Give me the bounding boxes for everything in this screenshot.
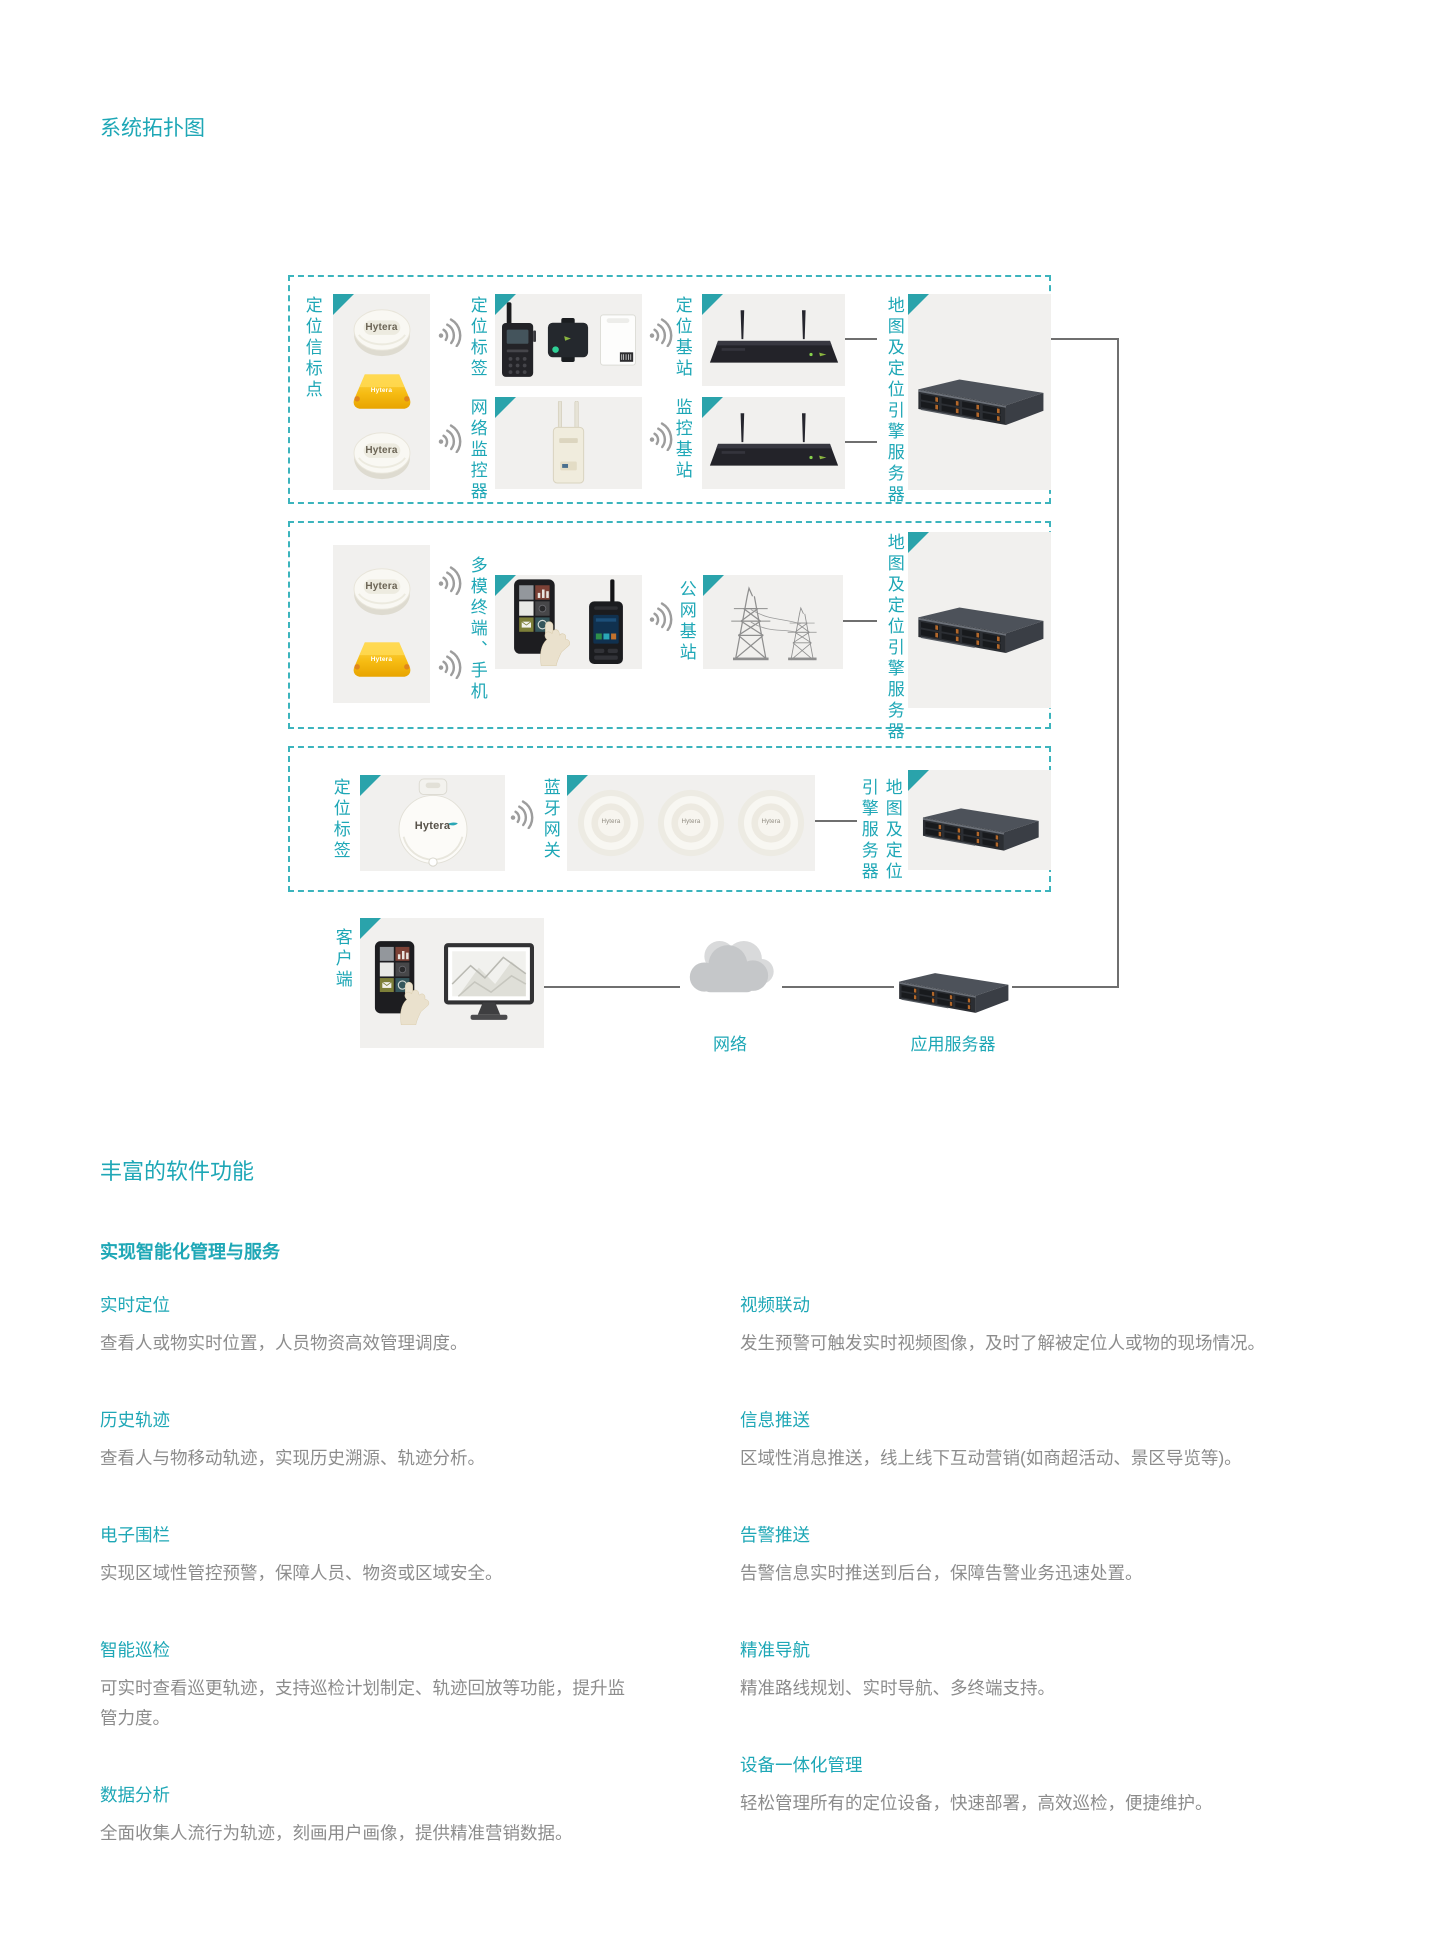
feature-item: 实时定位 查看人或物实时位置，人员物资高效管理调度。: [100, 1292, 640, 1358]
server-icon: [918, 786, 1042, 854]
features-grid: 实时定位 查看人或物实时位置，人员物资高效管理调度。 历史轨迹 查看人与物移动轨…: [100, 1292, 1390, 1897]
feature-title: 设备一体化管理: [740, 1752, 1390, 1777]
client-label: 客户端: [332, 928, 351, 991]
connector-line: [1117, 338, 1119, 988]
feature-item: 数据分析 全面收集人流行为轨迹，刻画用户画像，提供精准营销数据。: [100, 1782, 640, 1848]
corner-triangle-icon: [908, 294, 929, 315]
feature-desc: 查看人与物移动轨迹，实现历史溯源、轨迹分析。: [100, 1443, 640, 1473]
feature-title: 精准导航: [740, 1637, 1390, 1662]
feature-desc: 全面收集人流行为轨迹，刻画用户画像，提供精准营销数据。: [100, 1818, 640, 1848]
connector-line: [843, 620, 877, 622]
network-label: 网络: [678, 1030, 782, 1055]
positioning-tag-label: 定位标签: [330, 778, 349, 862]
map-engine-server-label: 地图及定位引擎服务器: [884, 296, 903, 506]
features-left-column: 实时定位 查看人或物实时位置，人员物资高效管理调度。 历史轨迹 查看人与物移动轨…: [100, 1292, 640, 1897]
multimode-terminal-label: 多模终端、手机: [467, 556, 486, 703]
server-image-block: [908, 294, 1051, 490]
positioning-tag-label: 定位标签: [467, 296, 486, 380]
smartphone-hand-icon: [509, 579, 575, 666]
beacon-points-label: 定位信标点: [302, 296, 321, 401]
terminal-image-block: [495, 575, 642, 669]
connector-line: [845, 441, 877, 443]
wireless-signal-icon: [647, 602, 677, 632]
public-network-station-label: 公网基站: [676, 580, 695, 664]
feature-title: 实时定位: [100, 1292, 640, 1317]
server-icon: [913, 355, 1047, 429]
feature-desc: 区域性消息推送，线上线下互动营销(如商超活动、景区导览等)。: [740, 1443, 1390, 1473]
connector-line: [1051, 338, 1117, 340]
power-tower-icon: [709, 582, 837, 662]
feature-desc: 告警信息实时推送到后台，保障告警业务迅速处置。: [740, 1558, 1390, 1588]
beacon-icon: Hytera: [351, 562, 413, 618]
feature-desc: 精准路线规划、实时导航、多终端支持。: [740, 1673, 1390, 1703]
feature-title: 数据分析: [100, 1782, 640, 1807]
connector-line: [815, 820, 857, 822]
wireless-signal-icon: [436, 318, 466, 348]
feature-desc: 查看人或物实时位置，人员物资高效管理调度。: [100, 1328, 640, 1358]
base-station-icon: [709, 413, 839, 473]
positioning-station-image-block: [702, 294, 845, 386]
feature-title: 告警推送: [740, 1522, 1390, 1547]
engine-server-label-left: 引擎服务器: [858, 778, 877, 883]
page-title: 系统拓扑图: [100, 112, 205, 142]
monitoring-station-label: 监控基站: [672, 398, 691, 482]
corner-triangle-icon: [360, 918, 381, 939]
app-server-icon: [894, 952, 1012, 1021]
features-right-column: 视频联动 发生预警可触发实时视频图像，及时了解被定位人或物的现场情况。 信息推送…: [740, 1292, 1390, 1897]
beacon-icon: Hytera: [351, 426, 413, 482]
radio-icon: [502, 302, 536, 378]
feature-item: 电子围栏 实现区域性管控预警，保障人员、物资或区域安全。: [100, 1522, 640, 1588]
connector-line: [544, 986, 680, 988]
feature-desc: 实现区域性管控预警，保障人员、物资或区域安全。: [100, 1558, 640, 1588]
bluetooth-gateway-icon: Hytera: [657, 789, 725, 857]
feature-item: 精准导航 精准路线规划、实时导航、多终端支持。: [740, 1637, 1390, 1703]
connector-line: [1012, 986, 1118, 988]
positioning-station-label: 定位基站: [672, 296, 691, 380]
bluetooth-gateway-icon: Hytera: [577, 789, 645, 857]
monitor-icon: [444, 943, 534, 1023]
cloud-icon: [678, 924, 782, 1017]
feature-title: 视频联动: [740, 1292, 1390, 1317]
feature-title: 智能巡检: [100, 1637, 640, 1662]
tag-devices-image-block: [495, 294, 642, 386]
pendant-tag-image-block: Hytera: [360, 775, 505, 871]
gateway-image-block: Hytera Hytera Hytera: [567, 775, 815, 871]
beacon-image-block: Hytera Hytera: [333, 545, 430, 703]
id-card-icon: [600, 314, 636, 366]
feature-item: 历史轨迹 查看人与物移动轨迹，实现历史溯源、轨迹分析。: [100, 1407, 640, 1473]
server-icon: [913, 583, 1047, 657]
feature-item: 视频联动 发生预警可触发实时视频图像，及时了解被定位人或物的现场情况。: [740, 1292, 1390, 1358]
pendant-tag-icon: Hytera: [385, 778, 481, 868]
bluetooth-gateway-icon: Hytera: [737, 789, 805, 857]
beacon-image-block: Hytera Hytera Hytera: [333, 294, 430, 490]
network-monitor-icon: [542, 401, 596, 485]
poc-radio-icon: [584, 579, 628, 666]
yellow-beacon-icon: Hytera: [351, 636, 413, 686]
network-monitor-image-block: [495, 397, 642, 489]
connector-line: [782, 986, 894, 988]
corner-triangle-icon: [360, 775, 381, 796]
feature-item: 信息推送 区域性消息推送，线上线下互动营销(如商超活动、景区导览等)。: [740, 1407, 1390, 1473]
wireless-signal-icon: [436, 650, 466, 680]
corner-triangle-icon: [495, 397, 516, 418]
wireless-signal-icon: [436, 424, 466, 454]
feature-desc: 发生预警可触发实时视频图像，及时了解被定位人或物的现场情况。: [740, 1328, 1390, 1358]
connector-line: [845, 338, 877, 340]
server-image-block: [908, 770, 1051, 870]
feature-item: 设备一体化管理 轻松管理所有的定位设备，快速部署，高效巡检，便捷维护。: [740, 1752, 1390, 1818]
feature-title: 历史轨迹: [100, 1407, 640, 1432]
map-engine-server-label: 地图及定位引擎服务器: [884, 533, 903, 743]
feature-item: 告警推送 告警信息实时推送到后台，保障告警业务迅速处置。: [740, 1522, 1390, 1588]
features-title: 丰富的软件功能: [100, 1154, 254, 1186]
feature-title: 信息推送: [740, 1407, 1390, 1432]
base-station-icon: [709, 310, 839, 370]
monitoring-station-image-block: [702, 397, 845, 489]
feature-item: 智能巡检 可实时查看巡更轨迹，支持巡检计划制定、轨迹回放等功能，提升监管力度。: [100, 1637, 640, 1733]
client-image-block: [360, 918, 544, 1048]
app-server-label: 应用服务器: [894, 1030, 1012, 1055]
feature-title: 电子围栏: [100, 1522, 640, 1547]
beacon-icon: Hytera: [351, 303, 413, 359]
yellow-beacon-icon: Hytera: [351, 367, 413, 417]
engine-server-label-right: 地图及定位: [882, 778, 901, 883]
feature-desc: 可实时查看巡更轨迹，支持巡检计划制定、轨迹回放等功能，提升监管力度。: [100, 1673, 640, 1733]
wireless-signal-icon: [436, 566, 466, 596]
network-monitor-label: 网络监控器: [467, 398, 486, 503]
corner-triangle-icon: [908, 532, 929, 553]
public-station-image-block: [703, 575, 843, 669]
tag-device-icon: [545, 318, 591, 362]
smartphone-hand-icon: [370, 941, 434, 1025]
feature-desc: 轻松管理所有的定位设备，快速部署，高效巡检，便捷维护。: [740, 1788, 1390, 1818]
bluetooth-gateway-label: 蓝牙网关: [540, 778, 559, 862]
server-image-block: [908, 532, 1051, 708]
features-subtitle: 实现智能化管理与服务: [100, 1238, 280, 1264]
wireless-signal-icon: [508, 800, 538, 830]
